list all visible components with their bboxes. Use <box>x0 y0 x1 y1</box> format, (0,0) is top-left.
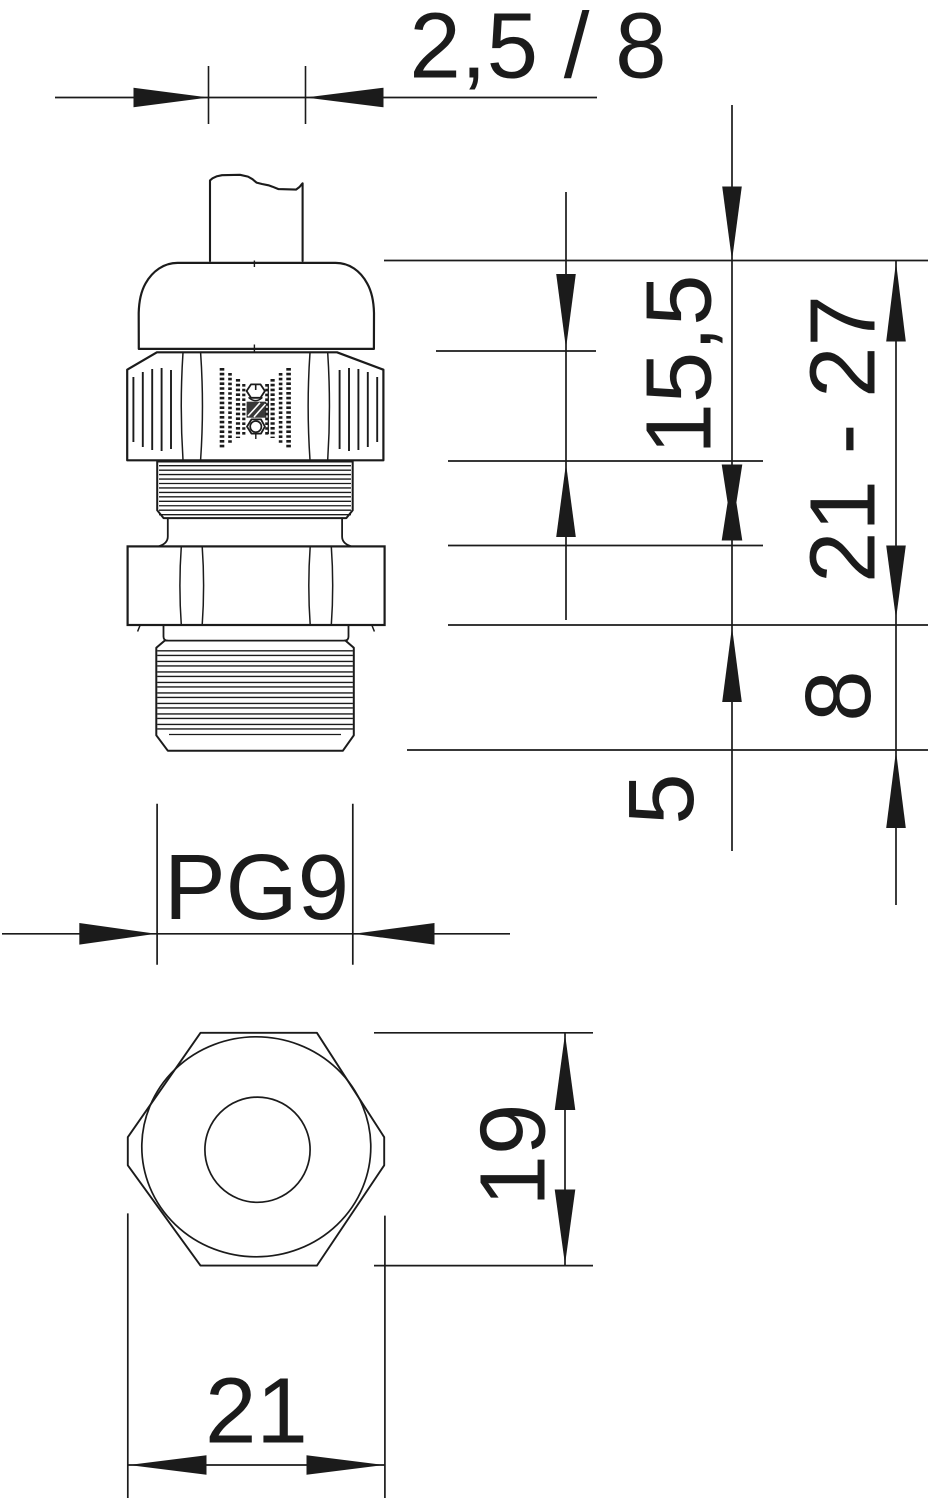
svg-text:2,5 / 8: 2,5 / 8 <box>409 0 666 98</box>
svg-text:21 - 27: 21 - 27 <box>791 295 895 583</box>
svg-text:21: 21 <box>205 1358 308 1462</box>
svg-text:5: 5 <box>609 773 713 824</box>
svg-text:19: 19 <box>461 1104 565 1207</box>
svg-text:15,5: 15,5 <box>627 274 731 454</box>
svg-text:8: 8 <box>786 670 890 721</box>
svg-text:PG9: PG9 <box>164 835 349 939</box>
